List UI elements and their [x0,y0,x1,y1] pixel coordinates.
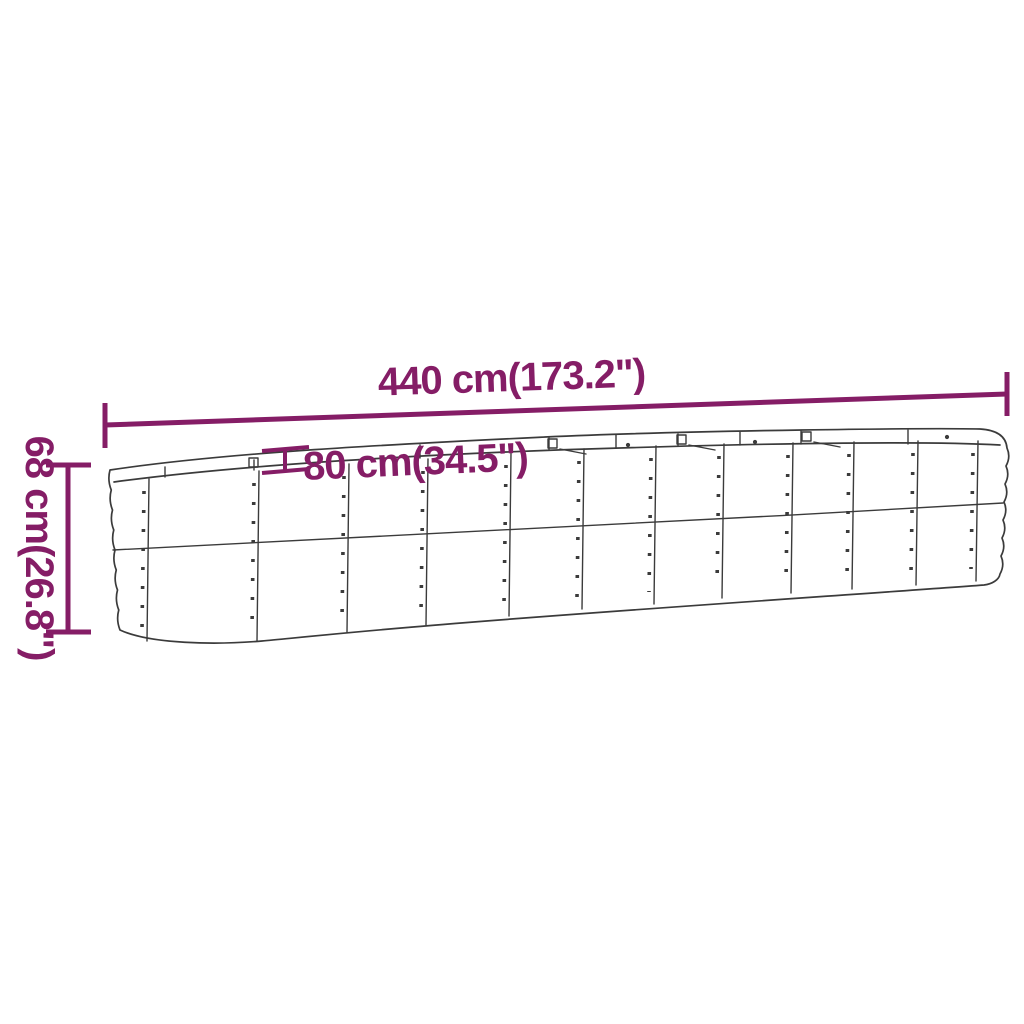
length-dimension-label: 440 cm(173.2") [377,351,646,404]
length-dimension: 440 cm(173.2") [105,351,1007,448]
product-dimension-diagram: 440 cm(173.2") 80 cm(34.5") 68 cm(26.8") [0,0,1024,1024]
depth-dimension: 80 cm(34.5") [262,435,529,489]
rivet-rows [142,453,973,629]
height-dimension-label: 68 cm(26.8") [17,436,61,661]
depth-dimension-bottom-cap [262,469,309,473]
planter-outline [109,429,1009,643]
planter-line-art-canvas: 440 cm(173.2") 80 cm(34.5") 68 cm(26.8") [0,0,1024,1024]
depth-dimension-label: 80 cm(34.5") [302,435,529,489]
rim-inner-line [114,443,1000,482]
length-dimension-line [105,394,1007,425]
height-dimension: 68 cm(26.8") [17,436,91,661]
planter-drawing [109,429,1009,643]
middle-seam-line [113,503,1003,550]
